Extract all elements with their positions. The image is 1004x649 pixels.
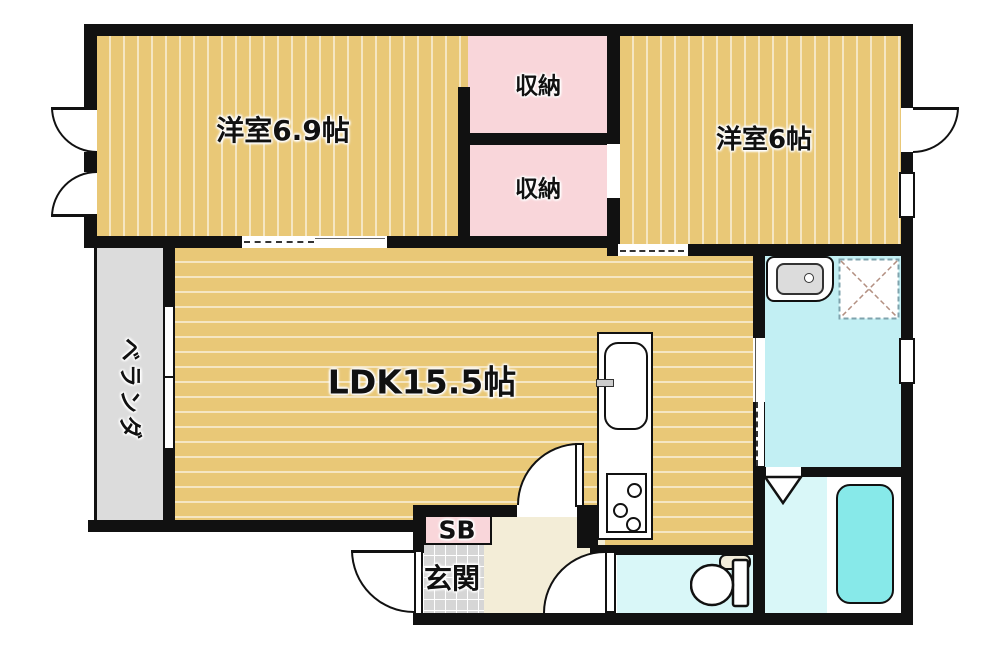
sliding-door-line — [315, 238, 385, 239]
wall-washroom-left-upper — [753, 244, 765, 338]
bathtub-icon — [836, 484, 894, 604]
casement-window-pane-2-icon — [51, 171, 97, 217]
kitchen-faucet-icon — [596, 379, 614, 387]
veranda-sliding-window-icon — [163, 307, 175, 448]
sliding-door-room69-icon — [242, 236, 387, 248]
sliding-door-dash — [244, 241, 314, 243]
front-door-leaf-icon — [414, 550, 423, 615]
stove-burner — [627, 483, 642, 498]
gas-stove-icon — [606, 473, 647, 533]
casement-window-pane-3-icon — [913, 107, 959, 153]
washbasin-drain — [804, 273, 814, 283]
washbasin-icon — [766, 256, 834, 302]
ldk-doorway-gap — [517, 505, 577, 517]
stove-burner — [613, 503, 628, 518]
veranda-rail — [94, 248, 97, 532]
ldk-door-leaf-icon — [575, 443, 584, 507]
stove-burner — [626, 517, 641, 532]
casement-window-pane-1-icon — [51, 107, 97, 153]
closet-lower-opening — [607, 144, 620, 198]
sliding-door-dash — [620, 250, 684, 252]
washroom-window-icon — [899, 338, 915, 384]
washroom-sliding-panel — [756, 402, 764, 466]
western-room-6-9-label: 洋室6.9帖 — [216, 117, 350, 145]
wall-door-jamb — [413, 517, 424, 553]
veranda-label: ベランダ — [118, 338, 141, 442]
entrance-label: 玄関 — [424, 565, 480, 593]
wall-top — [84, 24, 913, 36]
closet-upper-label: 収納 — [515, 76, 561, 99]
wall-ldk-bottom — [88, 520, 420, 532]
wall-closet-right-upper — [607, 24, 620, 144]
closet-lower-label: 収納 — [515, 179, 561, 202]
shoebox-label: SB — [438, 518, 475, 543]
wall-hall-kitchen — [577, 505, 598, 548]
wall-bottom — [413, 613, 913, 625]
bathroom-folding-door-icon — [763, 470, 803, 505]
toilet-icon — [690, 552, 754, 610]
floor-plan: 洋室6.9帖 収納 収納 洋室6帖 LDK15.5帖 ベランダ SB 玄関 — [0, 0, 1004, 649]
window-gap-right — [901, 108, 913, 152]
washbasin-bowl — [776, 263, 824, 295]
wall-closet-divider — [458, 133, 610, 145]
washing-machine-pan-icon — [838, 258, 900, 320]
sliding-door-line — [755, 338, 756, 402]
wall-veranda-upper — [163, 248, 175, 307]
small-window-room6-icon — [899, 172, 915, 218]
western-room-6-label: 洋室6帖 — [716, 127, 812, 153]
wall-closet-left — [458, 87, 470, 248]
ldk-label: LDK15.5帖 — [328, 366, 516, 399]
sliding-window-tick — [165, 376, 173, 378]
toilet-door-leaf-icon — [605, 551, 616, 613]
sliding-door-room6-icon — [618, 244, 688, 256]
washroom-sliding-opening — [753, 338, 765, 402]
